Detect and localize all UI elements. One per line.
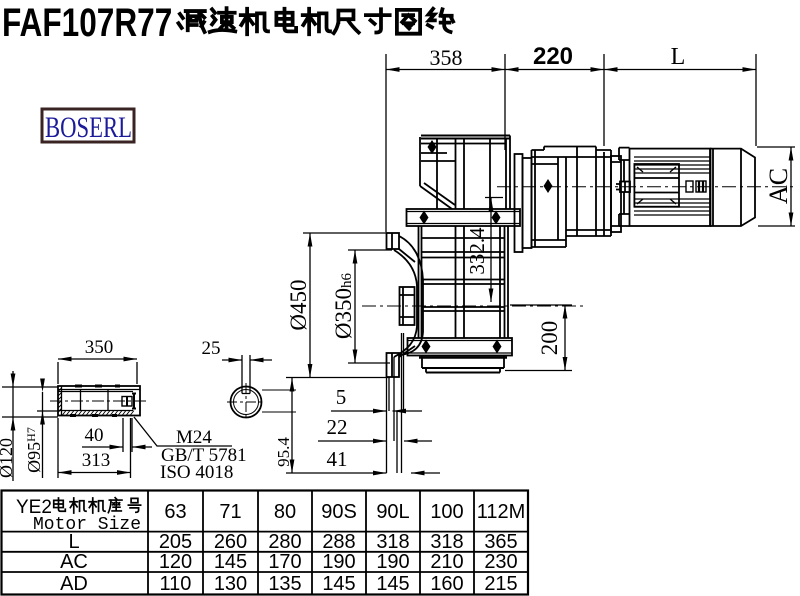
svg-text:95.4: 95.4 — [274, 437, 293, 467]
svg-text:215: 215 — [484, 573, 517, 595]
svg-text:130: 130 — [214, 573, 247, 595]
svg-text:Ø120: Ø120 — [0, 438, 16, 478]
svg-text:160: 160 — [430, 573, 463, 595]
svg-text:AC: AC — [60, 551, 88, 573]
svg-text:280: 280 — [268, 531, 301, 553]
svg-text:318: 318 — [376, 531, 409, 553]
svg-text:190: 190 — [322, 551, 355, 573]
svg-text:260: 260 — [214, 531, 247, 553]
svg-text:71: 71 — [219, 501, 241, 523]
svg-text:41: 41 — [327, 447, 348, 471]
svg-text:145: 145 — [322, 573, 355, 595]
svg-text:110: 110 — [160, 573, 192, 595]
svg-text:5: 5 — [336, 385, 347, 409]
svg-text:230: 230 — [484, 551, 517, 573]
svg-text:25: 25 — [202, 338, 221, 359]
svg-text:L: L — [671, 44, 686, 70]
svg-text:365: 365 — [484, 531, 517, 553]
svg-text:313: 313 — [82, 450, 111, 471]
svg-text:22: 22 — [327, 415, 348, 439]
svg-text:358: 358 — [430, 45, 463, 70]
svg-text:145: 145 — [214, 551, 247, 573]
svg-text:90S: 90S — [321, 501, 357, 523]
svg-text:Ø95H7: Ø95H7 — [24, 427, 44, 473]
svg-text:Ø450: Ø450 — [286, 279, 311, 330]
svg-text:135: 135 — [268, 573, 301, 595]
svg-text:63: 63 — [164, 501, 186, 523]
svg-text:112M: 112M — [477, 501, 526, 523]
svg-text:40: 40 — [85, 425, 104, 446]
svg-text:120: 120 — [159, 551, 192, 573]
svg-text:200: 200 — [537, 321, 562, 356]
svg-text:288: 288 — [322, 531, 355, 553]
svg-text:145: 145 — [376, 573, 409, 595]
svg-text:ISO 4018: ISO 4018 — [160, 462, 233, 483]
svg-text:332.4: 332.4 — [465, 227, 489, 275]
svg-text:FAF107R77: FAF107R77 — [2, 0, 172, 45]
svg-text:AC: AC — [764, 168, 793, 204]
svg-text:AD: AD — [60, 573, 88, 595]
svg-text:Ø350h6: Ø350h6 — [331, 272, 356, 339]
svg-text:205: 205 — [159, 531, 192, 553]
svg-text:100: 100 — [430, 501, 463, 523]
svg-text:BOSERL: BOSERL — [45, 111, 132, 144]
svg-text:Motor Size: Motor Size — [33, 515, 141, 535]
svg-text:90L: 90L — [376, 501, 409, 523]
svg-text:L: L — [68, 531, 79, 553]
svg-text:318: 318 — [430, 531, 463, 553]
svg-text:220: 220 — [533, 43, 573, 70]
svg-text:190: 190 — [376, 551, 409, 573]
svg-text:80: 80 — [274, 501, 296, 523]
svg-text:170: 170 — [268, 551, 301, 573]
svg-text:350: 350 — [85, 337, 114, 358]
svg-text:210: 210 — [430, 551, 463, 573]
